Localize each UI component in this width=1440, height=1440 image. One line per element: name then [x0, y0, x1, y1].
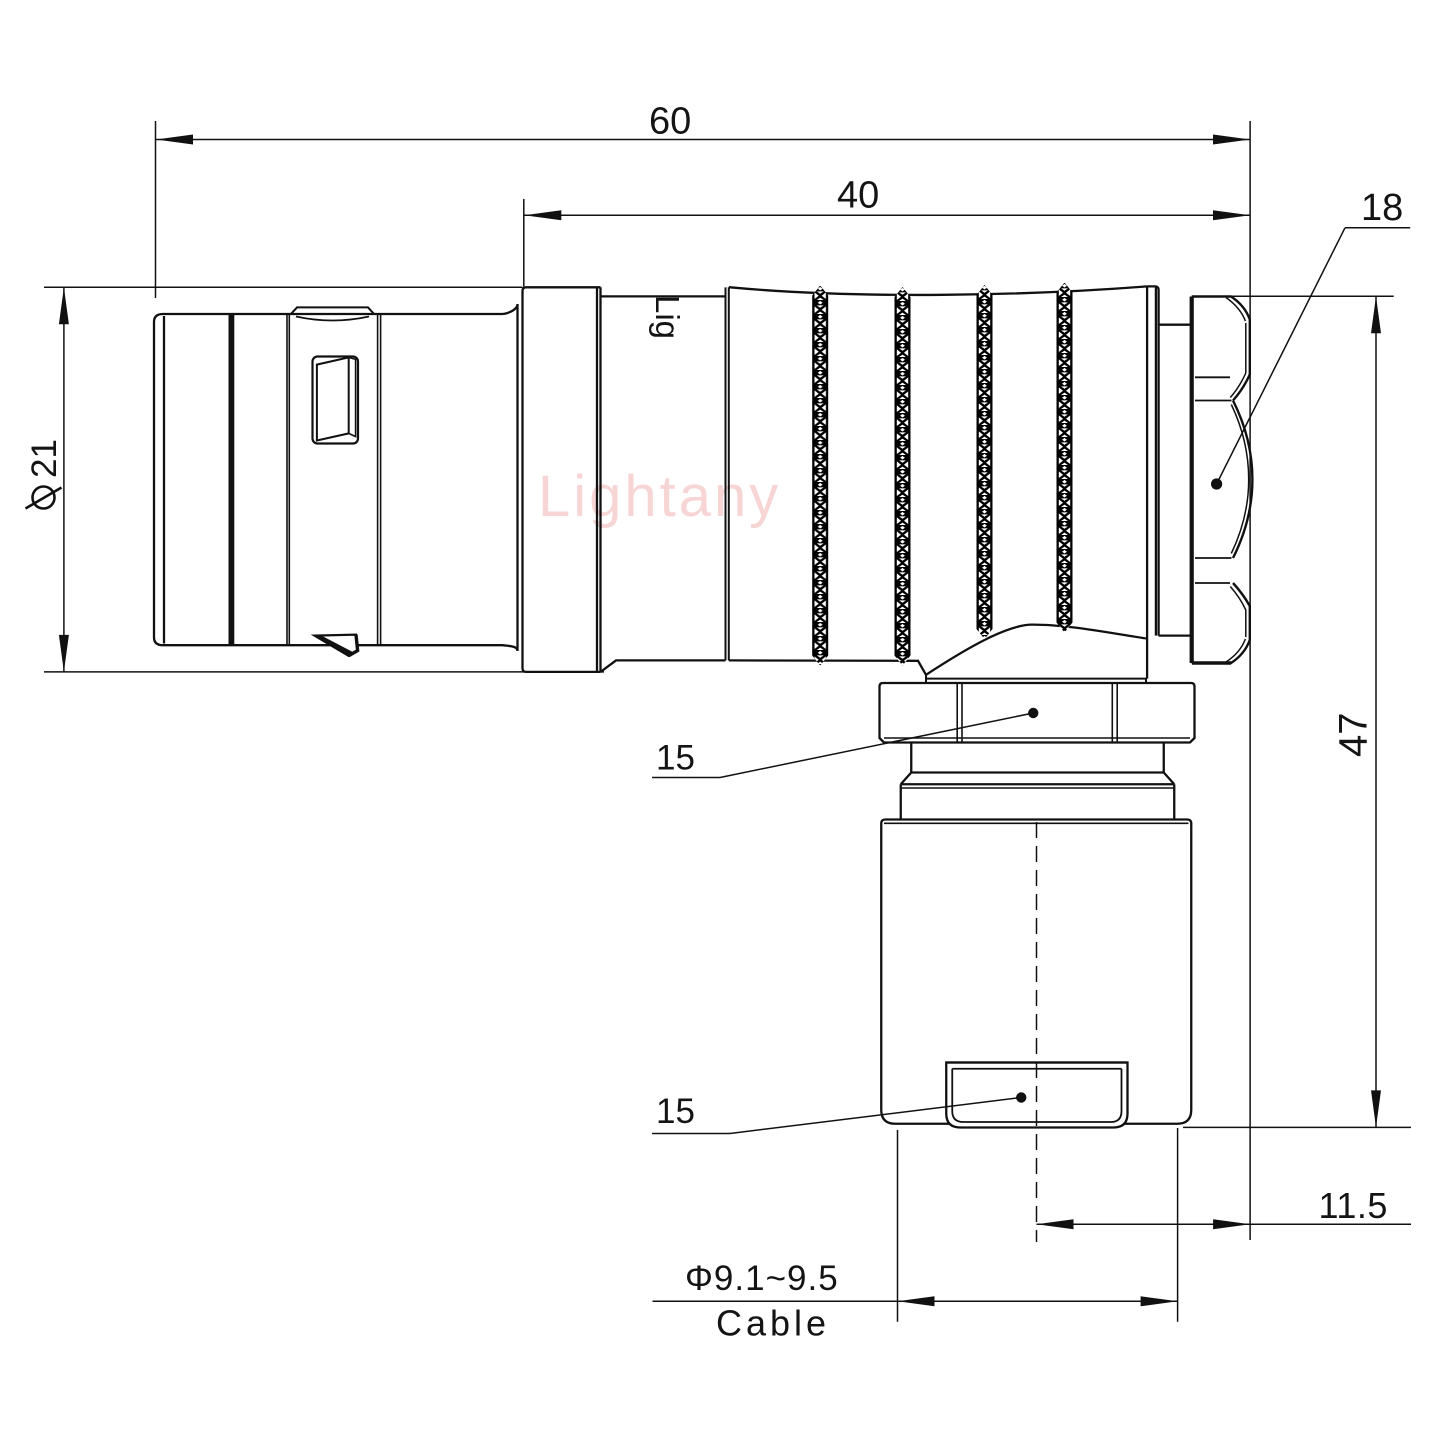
svg-text:15: 15 [656, 739, 695, 778]
svg-text:11.5: 11.5 [1319, 1185, 1388, 1226]
svg-text:18: 18 [1361, 187, 1403, 229]
svg-text:Cable: Cable [716, 1303, 830, 1344]
svg-text:Φ9.1~9.5: Φ9.1~9.5 [685, 1259, 839, 1298]
svg-text:15: 15 [656, 1092, 695, 1131]
svg-text:21: 21 [25, 439, 64, 478]
svg-text:47: 47 [1332, 713, 1376, 758]
svg-text:Lightany: Lightany [538, 464, 781, 529]
svg-text:40: 40 [837, 175, 879, 217]
svg-text:60: 60 [649, 101, 691, 143]
svg-text:Lig: Lig [649, 295, 686, 339]
